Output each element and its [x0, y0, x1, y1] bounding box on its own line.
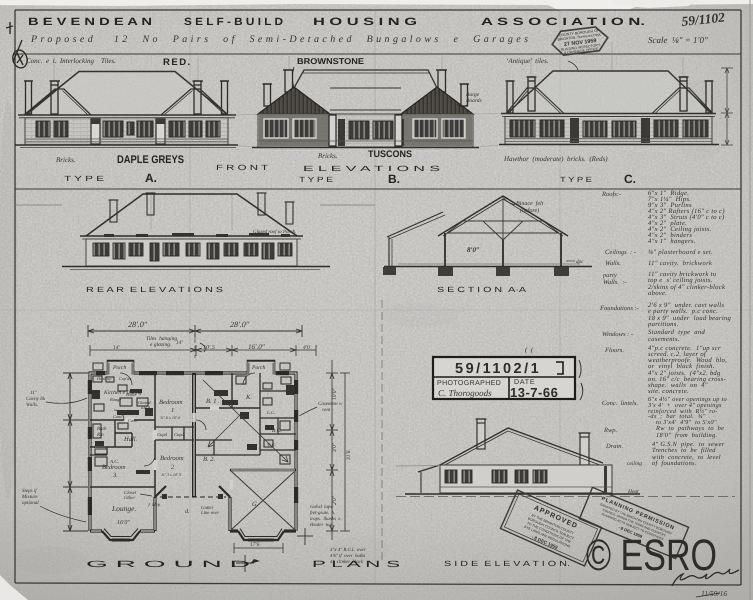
- svg-text:Walls.: Walls.: [26, 402, 38, 408]
- svg-text:Hall.: Hall.: [123, 436, 138, 443]
- svg-text:C. Thorogoods: C. Thorogoods: [438, 388, 492, 398]
- svg-text:Walls. :-: Walls. :-: [603, 279, 626, 286]
- svg-text:11″: 11″: [30, 390, 38, 396]
- svg-text:( (: ( (: [525, 346, 534, 354]
- svg-text:Foundations :-: Foundations :-: [599, 305, 639, 312]
- svg-text:Conc: Conc: [113, 414, 122, 419]
- svg-text:14′: 14′: [176, 340, 184, 346]
- svg-text:B.C.: B.C.: [272, 428, 282, 434]
- svg-text:11′.3 x 10′.5: 11′.3 x 10′.5: [161, 472, 181, 477]
- svg-text:16′.0″: 16′.0″: [248, 343, 265, 351]
- svg-text:11/59/16: 11/59/16: [701, 589, 727, 598]
- svg-text:4″x 1″ hangers.: 4″x 1″ hangers.: [648, 238, 696, 245]
- svg-text:Scale ⅛″ = 1′0″: Scale ⅛″ = 1′0″: [648, 35, 708, 45]
- svg-text:B. 1 .: B. 1 .: [206, 398, 220, 405]
- svg-text:dpc: dpc: [576, 259, 584, 265]
- svg-text:B E V E N D E A N: B E V E N D E A N: [28, 16, 152, 28]
- svg-text:4′0: 4′0: [303, 345, 310, 351]
- svg-text:3.: 3.: [112, 472, 118, 479]
- svg-text:site. concrete.: site. concrete.: [648, 388, 689, 395]
- svg-text:Drain.: Drain.: [605, 443, 624, 450]
- svg-text:14′: 14′: [113, 345, 121, 351]
- svg-text:Porch: Porch: [251, 365, 265, 371]
- svg-text:‘Antique’ tiles.: ‘Antique’ tiles.: [506, 57, 549, 65]
- svg-text:S I D E E L E V A T I O N.: S I D E E L E V A T I O N.: [444, 559, 570, 568]
- svg-text:T Y P E: T Y P E: [64, 174, 104, 183]
- svg-text:Line over: Line over: [200, 510, 219, 516]
- svg-text:Casement w: Casement w: [318, 401, 343, 407]
- svg-text:16′0″: 16′0″: [117, 520, 130, 526]
- svg-text:ceiling: ceiling: [627, 461, 642, 467]
- svg-text:B. 2.: B. 2.: [203, 456, 215, 463]
- svg-text:of foundations.: of foundations.: [652, 460, 697, 467]
- svg-text:K.: K.: [245, 394, 252, 401]
- svg-text:BROWNSTONE: BROWNSTONE: [297, 56, 364, 66]
- svg-text:⅜″ plasterboard e set.: ⅜″ plasterboard e set.: [648, 249, 713, 256]
- svg-text:Rm: Rm: [96, 432, 104, 438]
- svg-text:Cup′an: Cup′an: [119, 376, 131, 381]
- svg-text:Steps if: Steps if: [22, 488, 37, 494]
- svg-text:Bricks.: Bricks.: [56, 156, 76, 164]
- svg-text:Bedroom: Bedroom: [102, 464, 126, 471]
- svg-text:H O U S I N G: H O U S I N G: [313, 16, 417, 28]
- svg-text:1: 1: [171, 407, 174, 414]
- svg-text:Bath: Bath: [97, 426, 107, 432]
- svg-text:fret-grate. h.: fret-grate. h.: [310, 510, 335, 516]
- svg-text:top e s′ ceiling joists.: top e s′ ceiling joists.: [648, 277, 713, 284]
- svg-text:Standard type and: Standard type and: [648, 329, 706, 336]
- svg-text:A S S O C I A T I O N.: A S S O C I A T I O N.: [481, 16, 645, 28]
- svg-text:Range: Range: [109, 397, 121, 402]
- svg-text:10′0″: 10′0″: [332, 388, 338, 400]
- svg-text:optional: optional: [22, 500, 39, 506]
- svg-text:3″x 4″ R.C.L over: 3″x 4″ R.C.L over: [330, 547, 366, 553]
- svg-text:Bedroom: Bedroom: [159, 399, 183, 406]
- svg-text:A.: A.: [145, 171, 157, 185]
- svg-text:casements.: casements.: [648, 336, 680, 343]
- svg-text:R E A R E L E V A T I O N S: R E A R E L E V A T I O N S: [86, 285, 223, 294]
- svg-text:Heater top.: Heater top.: [309, 522, 333, 528]
- svg-text:Boards: Boards: [466, 98, 482, 104]
- svg-text:e party walls. p.c conc.: e party walls. p.c conc.: [648, 308, 718, 315]
- svg-text:Other: Other: [124, 495, 135, 501]
- svg-text:B.: B.: [388, 172, 400, 186]
- svg-text:59/1102/1: 59/1102/1: [455, 361, 541, 377]
- svg-text:Hawthor (moderate) bricks.: Hawthor (moderate) bricks. (Reds): [503, 155, 608, 163]
- svg-text:Galvd laps:: Galvd laps:: [310, 504, 334, 510]
- svg-text:DAPLE GREYS: DAPLE GREYS: [117, 154, 184, 166]
- svg-text:PHOTOGRAPHED: PHOTOGRAPHED: [437, 380, 501, 387]
- svg-text:Conc. e t. Interlocking: Conc. e t. Interlocking Tiles.: [26, 57, 116, 65]
- svg-text:2′0″: 2′0″: [332, 495, 338, 505]
- svg-text:partitions.: partitions.: [647, 321, 679, 328]
- svg-text:Windows : -: Windows : -: [602, 331, 633, 338]
- svg-text:ƒ illep: ƒ illep: [148, 502, 161, 508]
- svg-text:P L A N S: P L A N S: [312, 559, 400, 569]
- svg-text:Rwp.: Rwp.: [603, 427, 618, 434]
- svg-text:G R O U N D: G R O U N D: [86, 559, 252, 569]
- svg-text:Mixture: Mixture: [21, 494, 38, 500]
- svg-text:3′0″: 3′0″: [332, 442, 338, 453]
- svg-text:TUSCONS: TUSCONS: [368, 149, 412, 160]
- svg-text:RED.: RED.: [163, 57, 192, 68]
- svg-text:Bedroom: Bedroom: [160, 455, 184, 462]
- svg-text:18′0″ from building.: 18′0″ from building.: [656, 432, 717, 439]
- svg-text:e glazing.: e glazing.: [150, 342, 171, 348]
- svg-text:8′0″: 8′0″: [467, 246, 480, 254]
- svg-text:Walls.: Walls.: [605, 260, 621, 267]
- svg-text:11′.6 x 10′.0: 11′.6 x 10′.0: [160, 415, 181, 420]
- svg-text:Hook up: Hook up: [96, 376, 111, 381]
- svg-text:Cupd: Cupd: [174, 432, 185, 437]
- svg-text:L.C.: L.C.: [266, 410, 275, 416]
- svg-text:Conc. lintels.: Conc. lintels.: [602, 400, 638, 407]
- svg-text:E L E V A T I O N S: E L E V A T I O N S: [303, 164, 440, 173]
- svg-text:11″ cavity. brickwork: 11″ cavity. brickwork: [648, 260, 713, 267]
- svg-text:traps. thanks e.: traps. thanks e.: [310, 516, 342, 522]
- svg-text:S E L F - B U I L D: S E L F - B U I L D: [184, 16, 283, 28]
- svg-text:above.: above.: [648, 290, 667, 297]
- svg-text:party: party: [602, 272, 617, 279]
- svg-text:vent: vent: [322, 408, 331, 413]
- svg-text:Trenches to be filled: Trenches to be filled: [652, 447, 716, 454]
- svg-text:28′.0″: 28′.0″: [128, 320, 148, 329]
- svg-text:Ceilings : -: Ceilings : -: [605, 249, 636, 256]
- svg-text:31′6: 31′6: [346, 450, 352, 461]
- svg-text:C.: C.: [624, 172, 636, 186]
- svg-text:Bricks.: Bricks.: [318, 152, 338, 160]
- svg-text:28′.0″: 28′.0″: [230, 320, 250, 329]
- svg-text:Lounge.: Lounge.: [111, 504, 137, 513]
- svg-text:13-7-66: 13-7-66: [510, 385, 558, 400]
- svg-text:Boiler: Boiler: [126, 392, 137, 397]
- svg-text:© ESRO: © ESRO: [586, 531, 717, 580]
- svg-text:Cone: Cone: [128, 418, 137, 423]
- svg-text:Cavity bk: Cavity bk: [26, 396, 46, 402]
- svg-text:17′6: 17′6: [250, 542, 260, 548]
- svg-text:Porch: Porch: [112, 365, 126, 371]
- svg-text:tile 9: tile 9: [141, 405, 151, 410]
- svg-text:d.: d.: [185, 508, 190, 515]
- svg-text:F R O N T: F R O N T: [216, 163, 269, 172]
- svg-text:T Y P E: T Y P E: [299, 175, 333, 184]
- svg-text:10′.5: 10′.5: [203, 345, 215, 351]
- svg-text:Cupd: Cupd: [157, 432, 168, 437]
- svg-text:Floors.: Floors.: [604, 347, 624, 354]
- svg-text:or vinyl black finish.: or vinyl black finish.: [648, 363, 715, 370]
- svg-text:Rw to pathways to be: Rw to pathways to be: [655, 425, 724, 432]
- svg-text:G.: G.: [252, 501, 259, 508]
- svg-text:T Y P E: T Y P E: [560, 175, 592, 184]
- svg-text:Roofs:-: Roofs:-: [601, 191, 621, 198]
- svg-text:S E C T I O N A·A: S E C T I O N A·A: [437, 285, 526, 294]
